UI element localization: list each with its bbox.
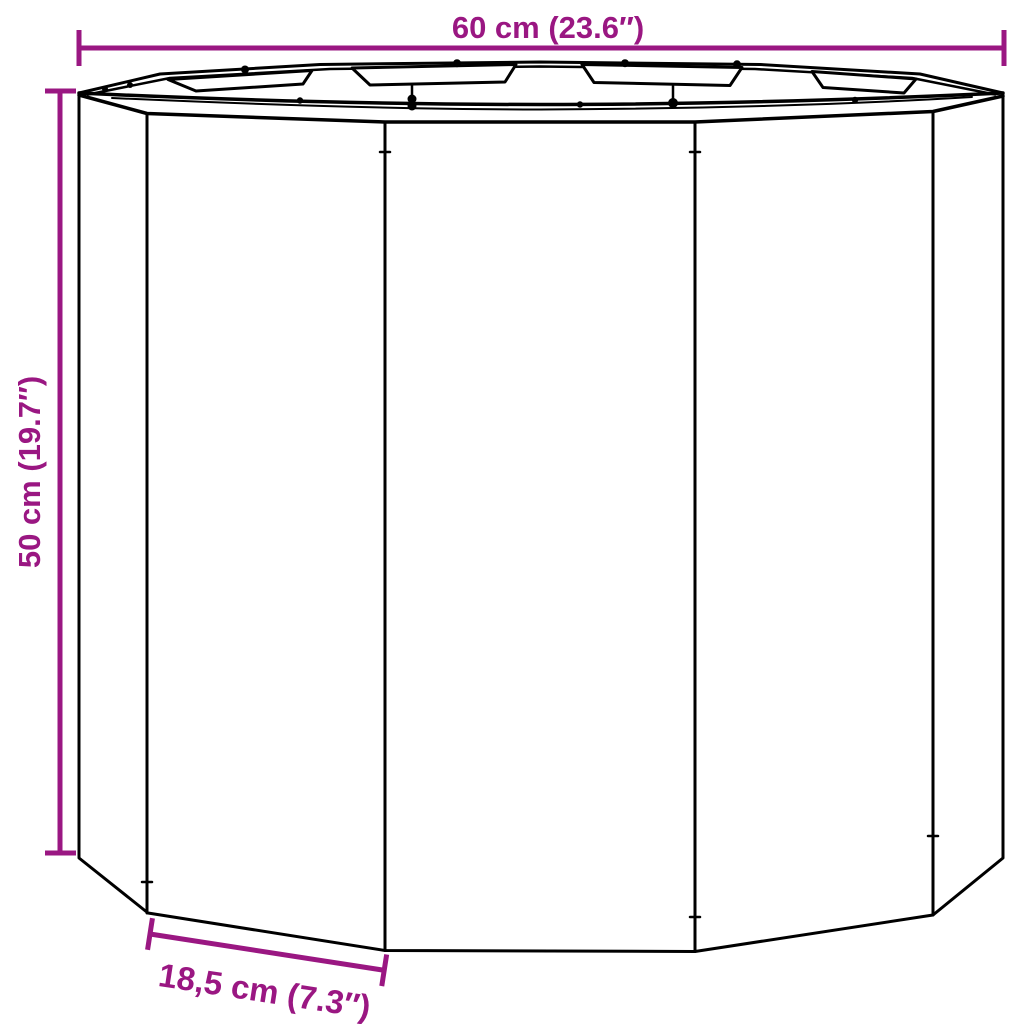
rim-knob-left-lower (408, 102, 417, 111)
dimension-panel-tick-right (382, 954, 387, 986)
dimension-height: 50 cm (19.7″) (12, 91, 76, 853)
planter-dimension-diagram: 60 cm (23.6″) 50 cm (19.7″) 18,5 cm (7.3… (0, 0, 1024, 1024)
planter-silhouette (79, 62, 1003, 952)
dimension-panel-tick-left (148, 918, 153, 950)
rim-knob-right (668, 98, 678, 108)
dimension-width-label: 60 cm (23.6″) (452, 10, 644, 45)
planter-drawing (79, 59, 1003, 951)
rim-flange-trapezoid-3 (582, 65, 742, 86)
dimension-width: 60 cm (23.6″) (79, 10, 1004, 66)
dimension-panel-label: 18,5 cm (7.3″) (156, 956, 373, 1024)
dimension-height-label: 50 cm (19.7″) (12, 376, 47, 568)
diagram-canvas: 60 cm (23.6″) 50 cm (19.7″) 18,5 cm (7.3… (0, 0, 1024, 1024)
rim-flange-trapezoid-2 (352, 65, 516, 86)
